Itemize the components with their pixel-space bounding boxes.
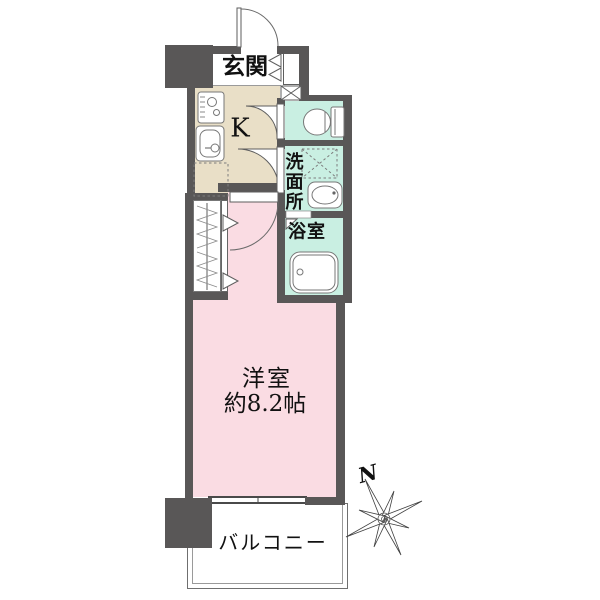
wall-right-lower	[336, 300, 345, 505]
wall-block-bottom-left	[165, 498, 212, 548]
wall-below-bath	[277, 295, 343, 303]
wall-closet-top	[185, 193, 228, 200]
wall-k-room	[218, 183, 280, 192]
wall-washroom-bath	[283, 211, 343, 218]
room-size-label: 約8.2帖	[224, 392, 307, 416]
wall-closet-bottom	[185, 292, 228, 300]
wall-k-toilet-stub1	[277, 98, 285, 106]
balcony-label: バルコニー	[218, 533, 328, 554]
shoe-cabinet-box	[283, 50, 300, 85]
wall-toilet-washroom	[283, 140, 343, 146]
compass-north-label: N	[356, 461, 380, 487]
wall-block-top-left	[165, 45, 213, 88]
room-name-label: 洋室	[242, 367, 292, 391]
balcony-window	[208, 496, 307, 504]
bath-label: 浴室	[288, 224, 326, 243]
closet-door-strip	[221, 200, 228, 292]
closet-floor	[193, 200, 221, 292]
floor-plan: 玄関 K 洗面所 浴室 洋室 約8.2帖 バルコニー N	[0, 0, 600, 600]
wall-right-mid	[343, 95, 352, 303]
wall-right-upper	[299, 46, 309, 98]
genkan-label: 玄関	[222, 55, 268, 79]
wall-bottom-right	[305, 497, 345, 505]
western-room-floor-upper	[228, 192, 277, 300]
entrance-door-swing-icon	[237, 8, 278, 47]
toilet-floor	[285, 101, 343, 140]
wall-left-kitchen	[187, 85, 195, 197]
compass-star-icon	[346, 479, 422, 555]
kitchen-label: K	[230, 115, 249, 142]
wall-left-lower	[185, 195, 193, 503]
washroom-label: 洗面所	[283, 152, 302, 212]
